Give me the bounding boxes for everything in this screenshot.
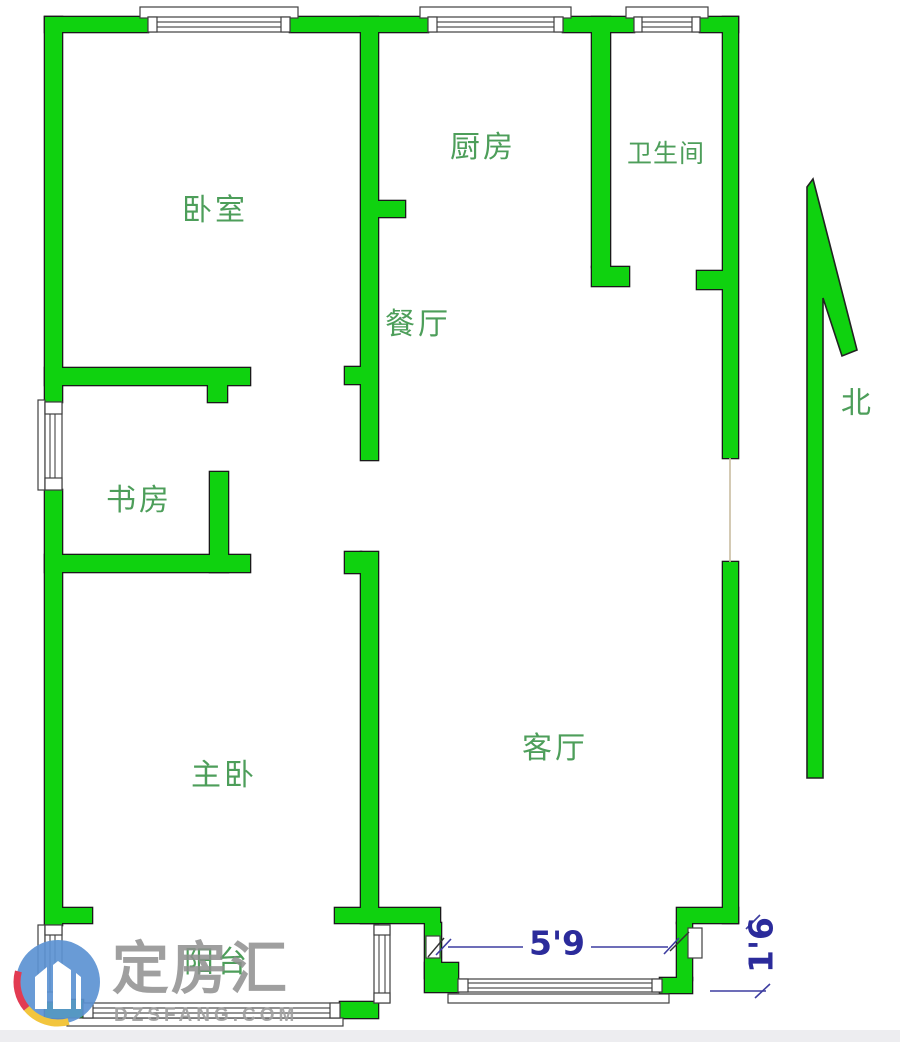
compass-north-label: 北 bbox=[841, 378, 871, 422]
balcony-south-window bbox=[67, 1003, 343, 1026]
room-label-study: 书房 bbox=[106, 475, 172, 519]
north-arrow-icon bbox=[807, 179, 857, 778]
room-label-living-room: 客厅 bbox=[522, 723, 588, 767]
room-label-master-bedroom: 主卧 bbox=[191, 750, 257, 794]
doors bbox=[426, 458, 730, 958]
floorplan-canvas: 卧室 厨房 卫生间 餐厅 书房 主卧 客厅 阳台 北 5'9 1'6 定房汇 D… bbox=[0, 0, 900, 1042]
room-label-bathroom: 卫生间 bbox=[627, 134, 705, 170]
living-room-window bbox=[448, 979, 669, 1003]
room-label-bedroom: 卧室 bbox=[182, 185, 248, 229]
balcony-side-window bbox=[374, 925, 390, 1003]
study-window bbox=[38, 400, 62, 490]
room-label-dining-room: 餐厅 bbox=[385, 299, 451, 343]
balcony-left-window bbox=[38, 925, 62, 1002]
dimension-entry-door: 1'6 bbox=[742, 917, 781, 973]
bedroom-window bbox=[140, 7, 298, 32]
kitchen-window bbox=[420, 7, 571, 32]
bottom-edge-strip bbox=[0, 1030, 900, 1042]
bathroom-window bbox=[626, 7, 708, 32]
room-label-kitchen: 厨房 bbox=[450, 122, 516, 166]
dimension-living-room-window: 5'9 bbox=[529, 924, 585, 963]
room-label-balcony: 阳台 bbox=[184, 937, 250, 981]
